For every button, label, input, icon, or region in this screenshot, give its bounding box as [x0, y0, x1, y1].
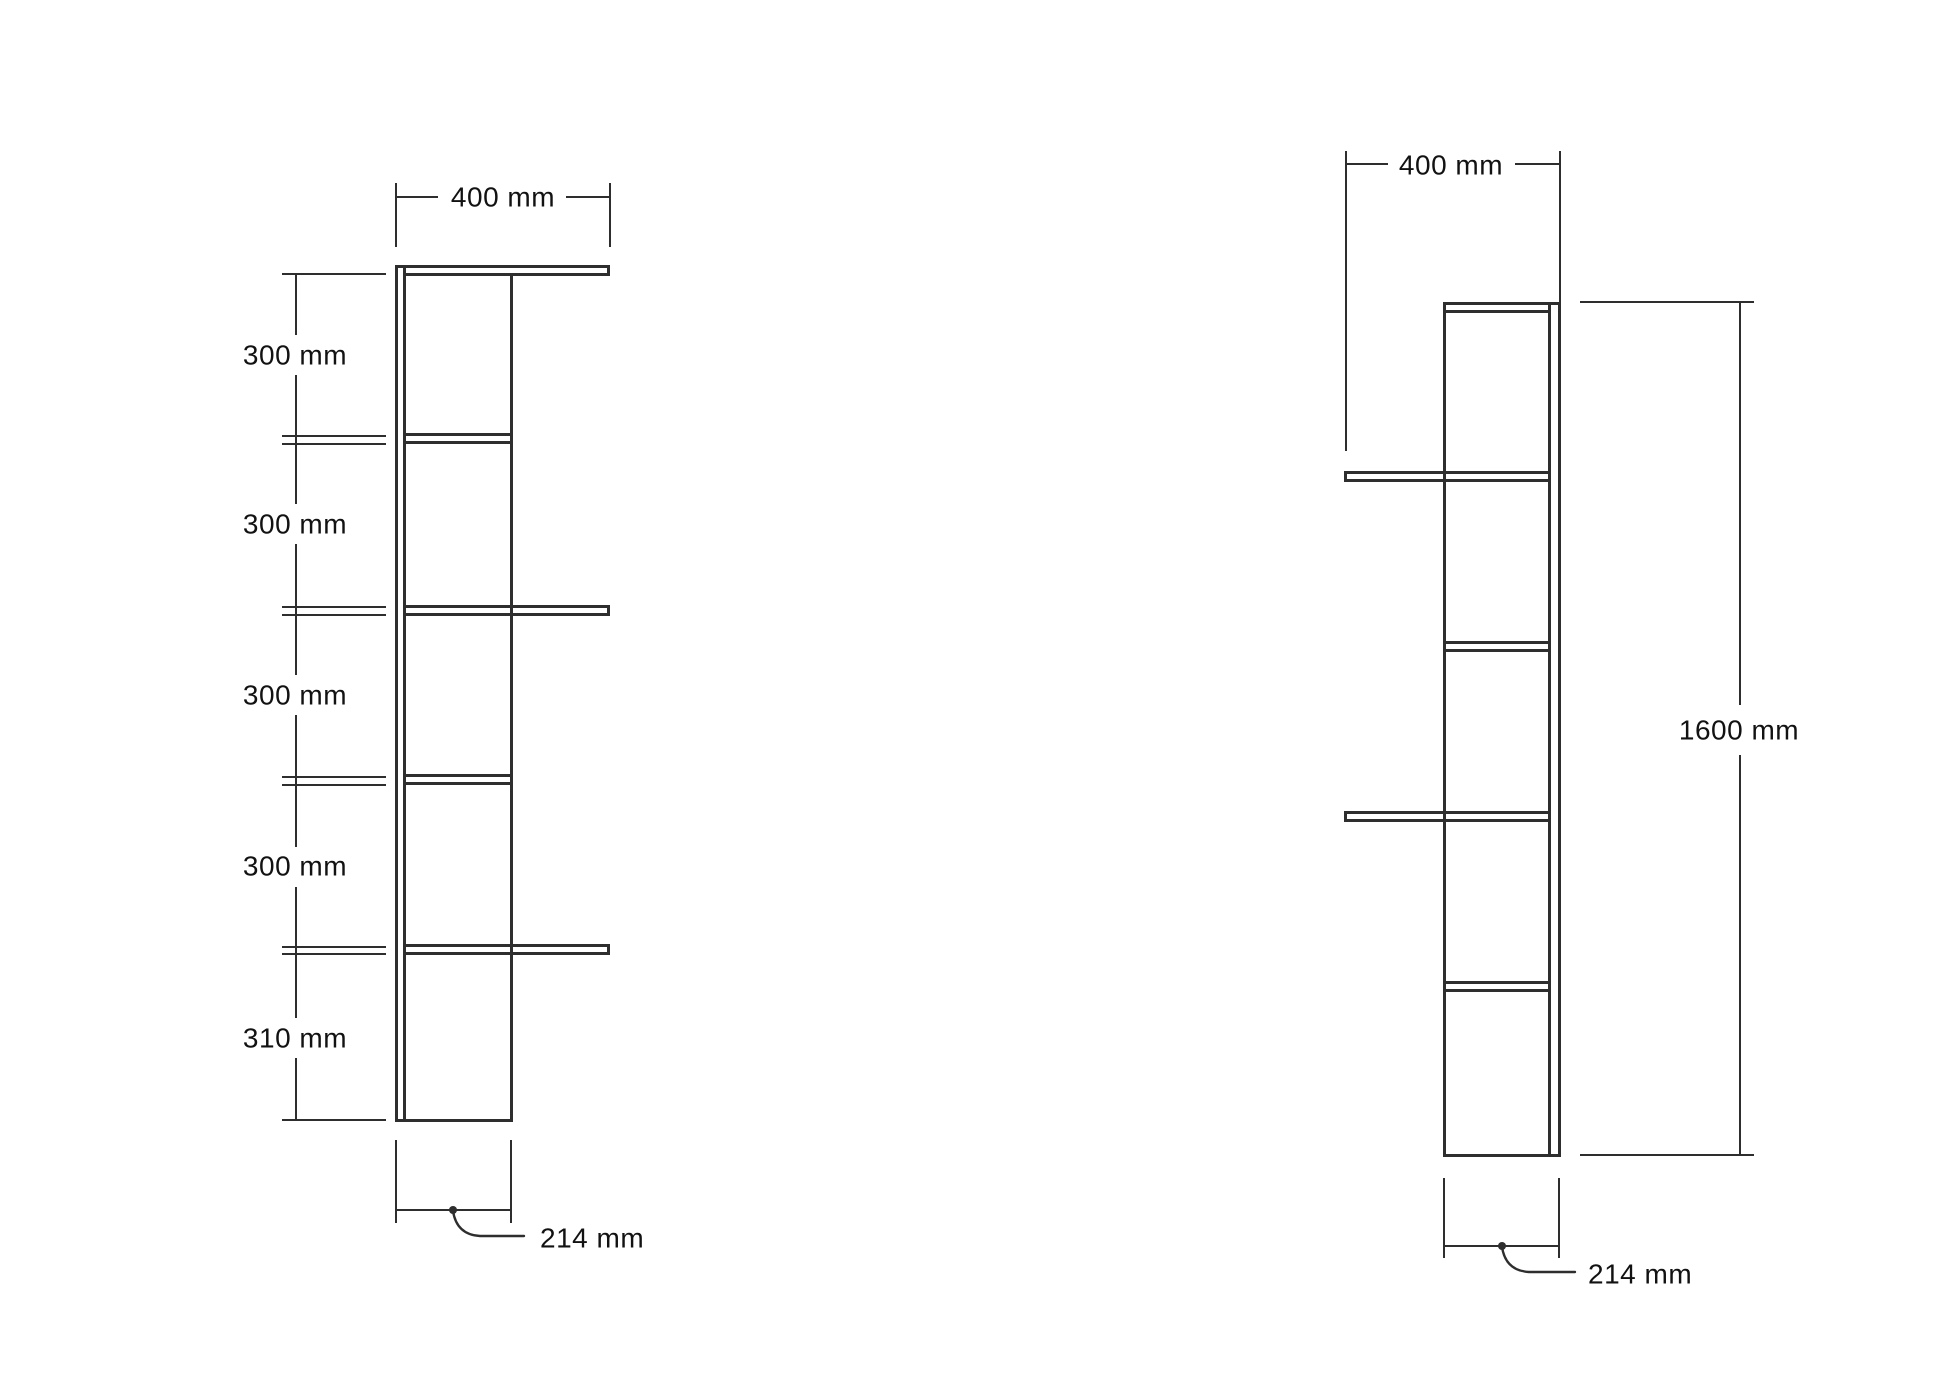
shelf-end-cap	[1344, 471, 1347, 482]
side-panel-line	[395, 265, 398, 1122]
dimension-line	[566, 196, 610, 198]
dimension-line	[1347, 163, 1388, 165]
protruding-shelf-line	[406, 952, 610, 955]
extension-line	[282, 443, 386, 445]
dimension-line	[295, 715, 297, 847]
dimension-line	[295, 887, 297, 1018]
dimension-line	[1739, 755, 1741, 1154]
extension-line	[609, 183, 611, 247]
extension-line	[282, 946, 386, 948]
extension-line	[1345, 151, 1347, 451]
top-board-line	[1443, 310, 1550, 313]
shelf-board-line	[406, 433, 510, 436]
leader-line	[1494, 1239, 1594, 1284]
side-panel-line	[1558, 302, 1561, 1157]
width-dimension-label: 400 mm	[451, 182, 555, 211]
extension-line	[1580, 301, 1754, 303]
section-height-label: 310 mm	[243, 1023, 347, 1052]
extension-line	[1580, 1154, 1754, 1156]
shelf-board-line	[1446, 649, 1550, 652]
extension-line	[282, 1119, 386, 1121]
extension-line	[395, 183, 397, 247]
dimension-line	[295, 375, 297, 504]
dimension-line	[1739, 303, 1741, 705]
protruding-shelf-line	[1344, 471, 1550, 474]
shelf-board-line	[1446, 989, 1550, 992]
shelf-board-line	[406, 774, 510, 777]
height-dimension-label: 1600 mm	[1679, 715, 1799, 744]
shelf-end-cap	[607, 605, 610, 616]
extension-line	[282, 273, 386, 275]
extension-line	[1559, 151, 1561, 302]
shelf-end-cap	[607, 944, 610, 955]
extension-line	[282, 614, 386, 616]
protruding-shelf-line	[1344, 479, 1550, 482]
top-shelf-board-line	[395, 265, 610, 268]
shelf-board-line	[1446, 981, 1550, 984]
dimension-line	[295, 1058, 297, 1120]
carcass-front-edge-line	[1443, 302, 1446, 1157]
dimension-line	[295, 544, 297, 675]
shelf-board-line	[406, 782, 510, 785]
section-height-label: 300 mm	[243, 509, 347, 538]
protruding-shelf-line	[406, 605, 610, 608]
width-dimension-label: 400 mm	[1399, 150, 1503, 179]
dimension-line	[295, 275, 297, 335]
shelf-end-cap	[1344, 811, 1347, 822]
shelf-board-line	[406, 441, 510, 444]
carcass-back-edge-line	[510, 273, 513, 1122]
protruding-shelf-line	[1344, 811, 1550, 814]
section-height-label: 300 mm	[243, 340, 347, 369]
top-board-line	[1443, 302, 1561, 305]
side-panel-line	[403, 265, 406, 1122]
protruding-shelf-line	[406, 944, 610, 947]
depth-dimension-label: 214 mm	[1588, 1259, 1692, 1288]
technical-drawing-canvas: 400 mm	[0, 0, 1946, 1376]
side-panel-line	[1548, 302, 1551, 1157]
shelf-board-line	[1446, 641, 1550, 644]
carcass-bottom-line	[1443, 1154, 1561, 1157]
depth-dimension-label: 214 mm	[540, 1223, 644, 1252]
extension-line	[282, 776, 386, 778]
dimension-line	[396, 196, 438, 198]
extension-line	[282, 953, 386, 955]
top-shelf-board-line	[404, 273, 610, 276]
carcass-bottom-line	[395, 1119, 513, 1122]
protruding-shelf-line	[406, 613, 610, 616]
protruding-shelf-line	[1344, 819, 1550, 822]
extension-line	[282, 606, 386, 608]
leader-line	[445, 1203, 545, 1248]
dimension-line	[1515, 163, 1559, 165]
section-height-label: 300 mm	[243, 851, 347, 880]
extension-line	[282, 784, 386, 786]
top-shelf-end-cap	[607, 265, 610, 276]
extension-line	[282, 435, 386, 437]
section-height-label: 300 mm	[243, 680, 347, 709]
